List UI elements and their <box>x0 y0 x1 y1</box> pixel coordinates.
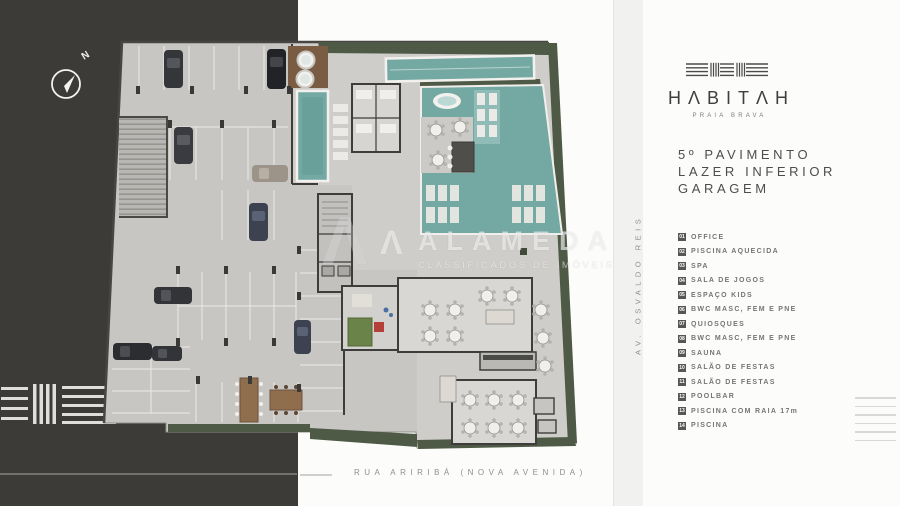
legend-item: 02 PISCINA AQUECIDA <box>678 245 798 260</box>
legend-number-badge: 12 <box>678 393 686 401</box>
legend-item: 03 SPA <box>678 259 798 274</box>
legend-number-badge: 05 <box>678 291 686 299</box>
legend-item-label: PISCINA AQUECIDA <box>691 248 779 255</box>
street-line-segment <box>300 474 332 476</box>
legend-item: 01 OFFICE <box>678 230 798 245</box>
legend-item-label: POOLBAR <box>691 393 735 400</box>
legend-item: 11 SALÃO DE FESTAS <box>678 375 798 390</box>
legend-item: 14 PISCINA <box>678 419 798 434</box>
brand-name: HΛBITΛH <box>650 88 806 109</box>
legend-number-badge: 04 <box>678 277 686 285</box>
main-pool <box>421 85 562 234</box>
habitah-logo-mark <box>686 62 770 77</box>
legend-item: 08 BWC MASC, FEM E PNE <box>678 332 798 347</box>
party-room-lower <box>440 376 536 444</box>
poolbar <box>448 142 475 172</box>
page-title: 5º PAVIMENTO LAZER INFERIOR GARAGEM <box>678 146 836 197</box>
legend-item-label: OFFICE <box>691 234 724 241</box>
legend-item-label: BWC MASC, FEM E PNE <box>691 335 797 342</box>
legend-item: 13 PISCINA COM RAIA 17m <box>678 404 798 419</box>
legend-item-label: SALÃO DE FESTAS <box>691 364 776 371</box>
floorplan-marketing-page: N <box>0 0 900 506</box>
legend-number-badge: 02 <box>678 248 686 256</box>
legend-number-badge: 06 <box>678 306 686 314</box>
crosswalk-markings <box>1 384 116 424</box>
legend-item-label: PISCINA COM RAIA 17m <box>691 408 798 415</box>
sauna-stairs-core <box>318 194 352 292</box>
avenue-band: AV. OSVALDO REIS <box>613 0 643 506</box>
brand-block: HΛBITΛH PRAIA BRAVA <box>650 62 806 119</box>
legend-item-label: SALA DE JOGOS <box>691 277 765 284</box>
kitchen-counter <box>480 352 536 370</box>
compass-icon: N <box>52 49 92 98</box>
legend-number-badge: 03 <box>678 262 686 270</box>
legend-item-label: SALÃO DE FESTAS <box>691 379 776 386</box>
legend-number-badge: 07 <box>678 320 686 328</box>
legend-item: 04 SALA DE JOGOS <box>678 274 798 289</box>
legend-item: 10 SALÃO DE FESTAS <box>678 361 798 376</box>
legend-item: 09 SAUNA <box>678 346 798 361</box>
legend-item-label: ESPAÇO KIDS <box>691 292 753 299</box>
legend-item: 12 POOLBAR <box>678 390 798 405</box>
legend-number-badge: 08 <box>678 335 686 343</box>
legend-item-label: SPA <box>691 263 709 270</box>
title-line-2: LAZER INFERIOR <box>678 163 836 180</box>
title-line-3: GARAGEM <box>678 180 836 197</box>
legend-number-badge: 10 <box>678 364 686 372</box>
kids-room <box>342 286 398 350</box>
avenue-label: AV. OSVALDO REIS <box>633 155 642 355</box>
title-line-1: 5º PAVIMENTO <box>678 146 836 163</box>
legend-item-label: QUIOSQUES <box>691 321 745 328</box>
lap-pool <box>386 55 534 81</box>
legend-item: 06 BWC MASC, FEM E PNE <box>678 303 798 318</box>
legend-list: 01 OFFICE 02 PISCINA AQUECIDA 03 SPA 04 … <box>678 230 798 433</box>
legend-number-badge: 11 <box>678 378 686 386</box>
compass-north-label: N <box>80 49 92 62</box>
legend-item: 07 QUIOSQUES <box>678 317 798 332</box>
party-room-upper <box>398 278 532 352</box>
brand-subtitle: PRAIA BRAVA <box>650 113 806 119</box>
legend-number-badge: 13 <box>678 407 686 415</box>
legend-item-label: BWC MASC, FEM E PNE <box>691 306 797 313</box>
legend-number-badge: 09 <box>678 349 686 357</box>
legend-item-label: PISCINA <box>691 422 729 429</box>
legend-number-badge: 14 <box>678 422 686 430</box>
spa-rooms <box>352 84 400 152</box>
legend-item-label: SAUNA <box>691 350 722 357</box>
legend-number-badge: 01 <box>678 233 686 241</box>
spa-hot-tubs <box>288 46 328 88</box>
decorative-stripes <box>855 397 896 448</box>
heated-pool <box>297 91 328 181</box>
bottom-street-label: RUA ARIRIBÁ (NOVA AVENIDA) <box>354 468 587 477</box>
legend-item: 05 ESPAÇO KIDS <box>678 288 798 303</box>
garage-ramp <box>119 117 167 217</box>
